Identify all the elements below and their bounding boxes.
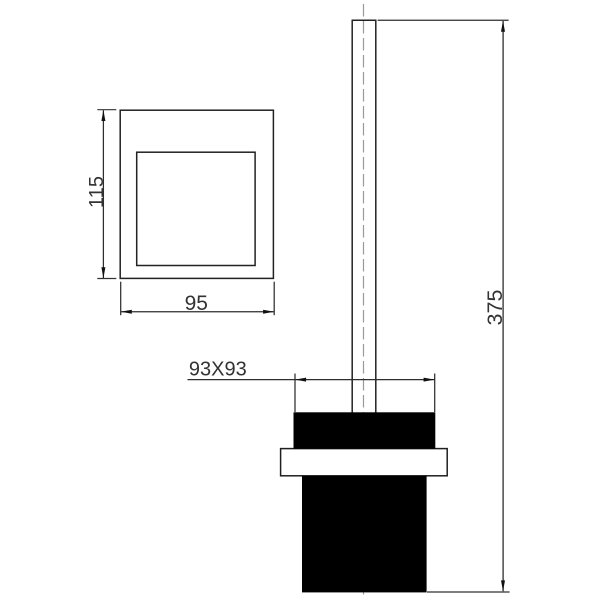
svg-text:115: 115 [86,176,108,208]
svg-text:95: 95 [185,292,208,315]
svg-text:375: 375 [483,290,507,326]
svg-text:93X93: 93X93 [189,358,247,380]
